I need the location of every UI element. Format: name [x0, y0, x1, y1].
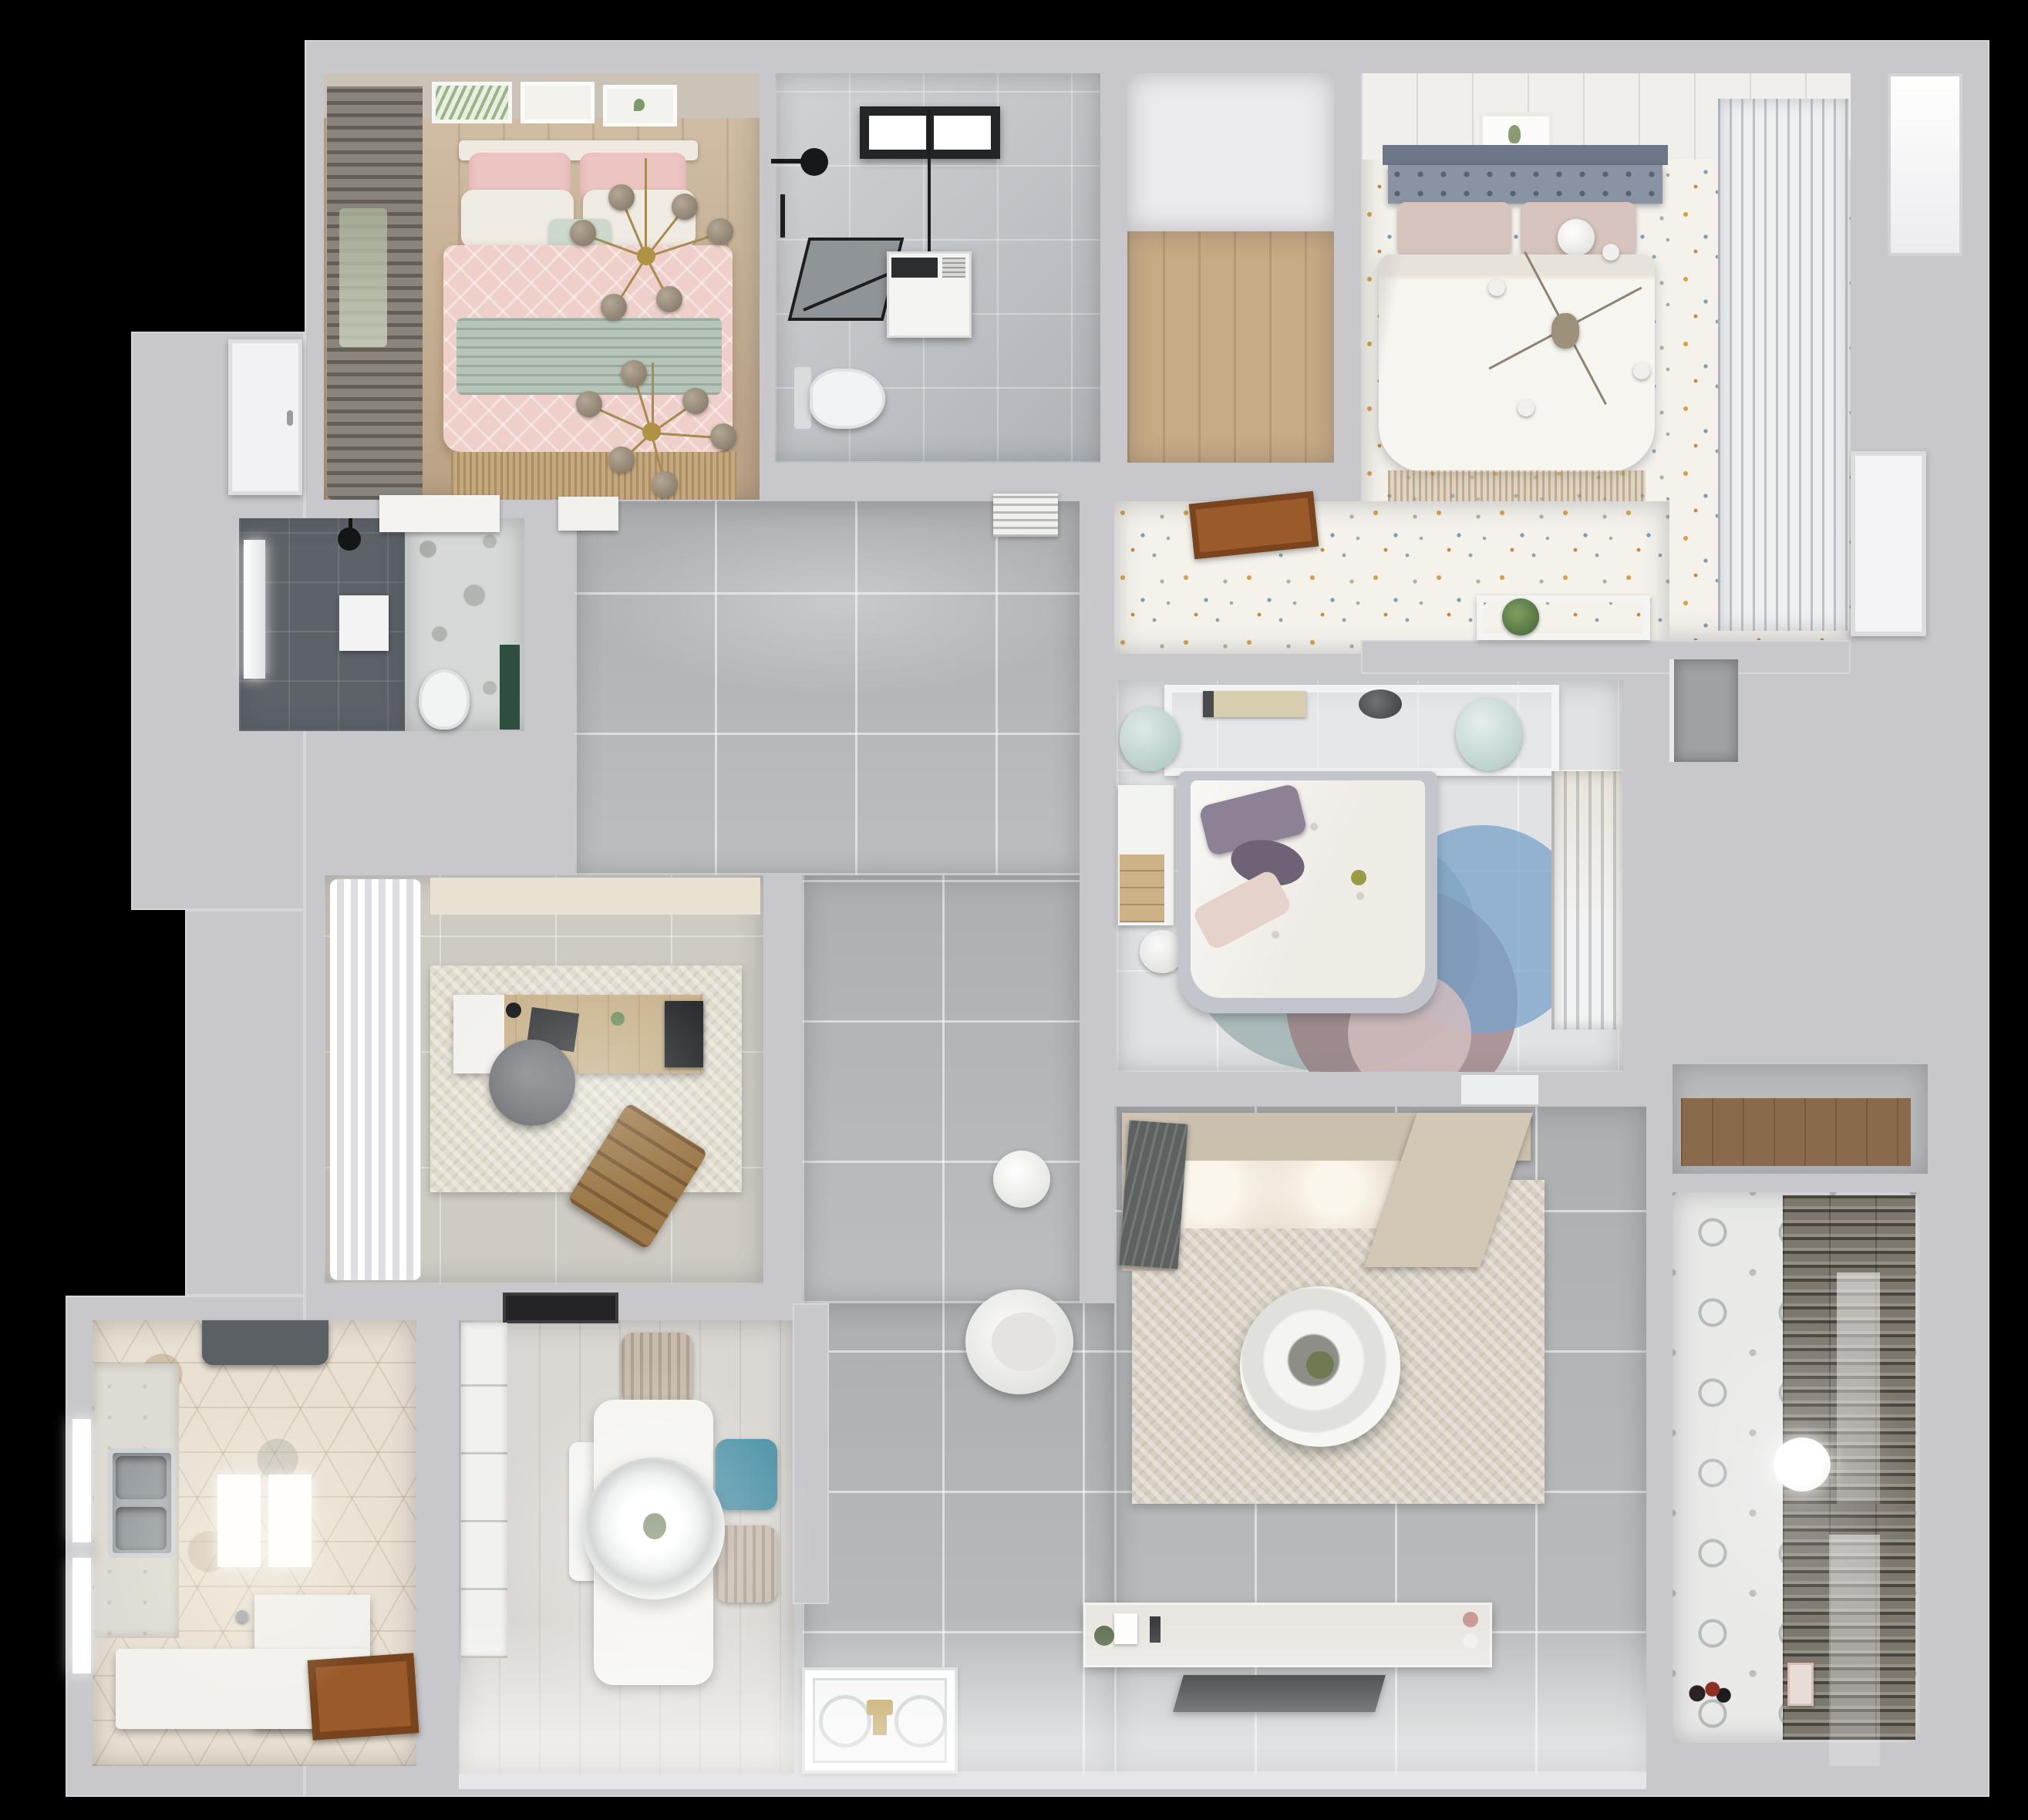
- office-chair: [489, 1040, 575, 1126]
- windows-kitchen-b: [72, 1558, 91, 1673]
- kitchen-faucet: [236, 1610, 248, 1623]
- washer-controls: [891, 258, 938, 278]
- console-pots-pink: [1463, 1612, 1478, 1627]
- plant-console: [1502, 598, 1539, 635]
- desk-monitor: [665, 1001, 703, 1067]
- master-bed-fringe: [1388, 470, 1646, 501]
- sofa-throw-grey: [1120, 1121, 1188, 1269]
- kitchen-sink: [108, 1448, 176, 1558]
- entry-mat: [802, 1667, 958, 1774]
- master-duvet: [1379, 254, 1655, 472]
- balcony-sphere-lamp: [1774, 1437, 1831, 1491]
- mint-nightstand-right: [1456, 698, 1522, 770]
- toilet-bathroom: [794, 367, 811, 429]
- toilet-shower-room: [419, 669, 470, 730]
- kitchen-board1: [217, 1475, 261, 1567]
- shower-arm-icon: [771, 159, 805, 163]
- balcony-toys: [1686, 1678, 1732, 1706]
- door-kitchen-wood: [308, 1653, 419, 1740]
- door-handle: [287, 410, 293, 426]
- bedroom1-nightstand: [558, 497, 618, 531]
- floorplan-render: [0, 0, 2028, 1820]
- kids-bowl: [1359, 689, 1402, 719]
- study-curtains: [330, 879, 421, 1280]
- kids-open-wardrobe: [1551, 771, 1622, 1030]
- kids-sprig: [1351, 870, 1366, 885]
- window-top-right-bay: [1888, 73, 1962, 256]
- console-bottles: [1150, 1616, 1161, 1643]
- master-pillow-left: [1397, 202, 1511, 256]
- living-side-table: [993, 1151, 1050, 1208]
- picture-frame-sprig: [603, 85, 677, 126]
- ac-floor-grille: [993, 494, 1058, 537]
- study-door-mat: [503, 1293, 618, 1323]
- hall-mid: [802, 875, 1080, 1303]
- green-accent-strip: [500, 645, 520, 730]
- door-master-right: [1851, 451, 1926, 636]
- master-chandelier-hub: [1551, 313, 1579, 349]
- chandelier-joint: [637, 247, 655, 265]
- closet-nook-wood: [1127, 231, 1334, 463]
- balcony-cans: [1787, 1663, 1814, 1706]
- master-ball-lamp: [1558, 219, 1595, 256]
- shower2-arm: [349, 518, 352, 538]
- wall-master-bottom: [1361, 640, 1851, 674]
- picture-frame-leaf: [432, 82, 512, 123]
- storage-wood-shelf: [1681, 1098, 1911, 1166]
- dining-cabinet: [461, 1323, 507, 1658]
- kids-desk-drawers: [1120, 854, 1164, 922]
- room-closet-nook: [1127, 73, 1334, 231]
- shower-glass-vertical: [928, 110, 931, 256]
- washing-machine: [887, 251, 972, 338]
- picture-frame-script: [520, 82, 595, 123]
- door-bedroom-pink: [228, 339, 302, 495]
- wall-dining-hall: [793, 1303, 829, 1604]
- kitchen-board2: [268, 1475, 312, 1567]
- tv-console: [1083, 1603, 1492, 1667]
- study-pelmet: [430, 878, 760, 915]
- coffee-table: [1240, 1286, 1400, 1447]
- towel-bar-icon: [780, 194, 785, 238]
- master-slatted-wardrobe: [1718, 99, 1849, 631]
- master-headboard-top: [1383, 145, 1668, 165]
- dining-chair-top: [622, 1333, 692, 1404]
- wall-slab-left-mid: [185, 910, 305, 1296]
- living-armchair: [965, 1289, 1073, 1394]
- desk-lamp: [506, 1003, 521, 1018]
- flush-panel: [339, 595, 389, 651]
- window-shower-room: [244, 540, 265, 679]
- dining-chair-teal: [716, 1439, 777, 1510]
- tv-panel: [1173, 1675, 1386, 1712]
- doorway-balcony-upper: [1669, 659, 1738, 762]
- windows-kitchen-a: [72, 1419, 91, 1542]
- hall-upper: [574, 501, 1080, 875]
- dining-chair-bottom: [716, 1525, 777, 1603]
- threshold-kids: [1461, 1075, 1538, 1104]
- toilet-bowl-bathroom: [810, 369, 885, 429]
- master-headboard: [1388, 165, 1662, 204]
- desk-plant: [611, 1012, 625, 1026]
- bedroom1-dresser: [379, 495, 500, 532]
- kitchen-hood: [202, 1320, 328, 1365]
- console-green-disc: [1094, 1626, 1114, 1646]
- console-frame: [1114, 1613, 1137, 1644]
- bedroom1-sage-throw: [456, 318, 722, 395]
- bedroom1-window-glimpse: [339, 208, 387, 347]
- kids-books: [1203, 691, 1306, 717]
- dining-pendant: [583, 1458, 725, 1599]
- mint-nightstand-left: [1120, 706, 1180, 771]
- chandelier-stem: [645, 158, 647, 257]
- bedroom1-fringe-rug: [451, 452, 736, 500]
- entry-mat-gold-emblem: [867, 1700, 893, 1715]
